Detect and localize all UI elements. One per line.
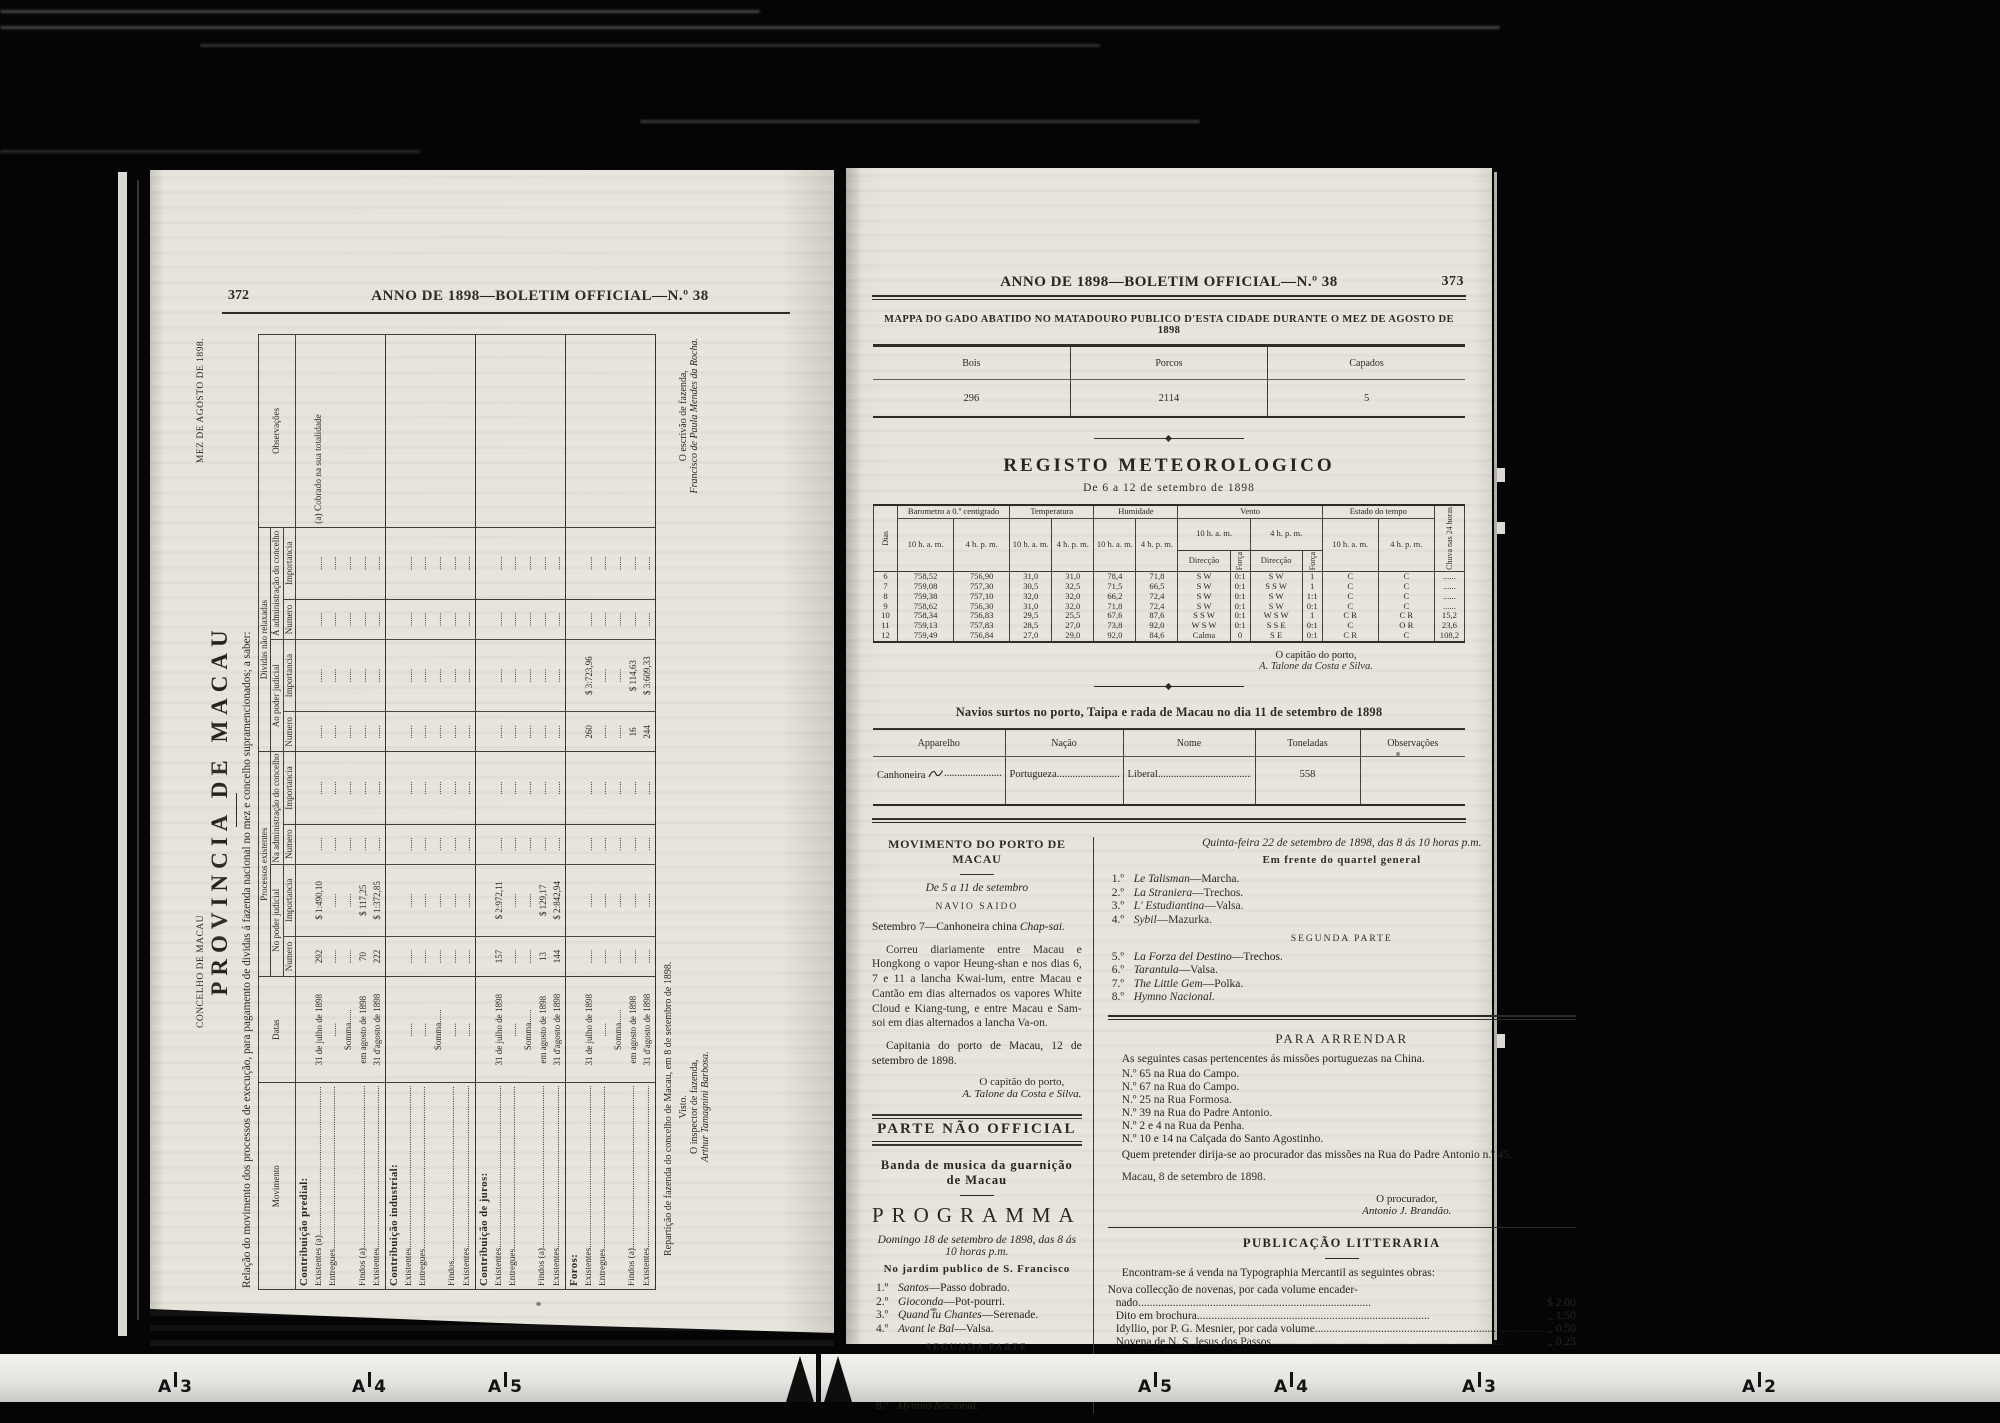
datas-cell: ...... [597, 977, 612, 1083]
value-cell: ...... [597, 752, 612, 824]
rotated-table-wrapper: CONCELHO DE MACAU MEZ DE AGOSTO DE 1898.… [196, 330, 812, 1290]
running-head: ANNO DE 1898—BOLETIM OFFICIAL—N.º 38 [290, 288, 790, 305]
value-cell: ...... [342, 752, 357, 824]
item-title: Gioconda [898, 1296, 943, 1308]
provincia-title: PROVINCIA DE MACAU [207, 330, 233, 1290]
house-item: N.º 25 na Rua Formosa. [1108, 1094, 1576, 1106]
table-row: Existentes31 d'agosto de 1898222$ 1:372,… [371, 335, 386, 1290]
col-header: Temperatura [1010, 505, 1094, 518]
programma2-part1-list: 1.ºLe Talisman—Marcha.2.ºLa Straniera—Tr… [1108, 873, 1576, 926]
item-number: 7.º [1112, 978, 1134, 990]
value-cell: ...... [356, 712, 371, 752]
col-header: Importancia [283, 527, 295, 599]
inspector-signature: Visto. O inspector de fazenda, Arthur Ta… [678, 1052, 711, 1162]
value-cell: ...... [371, 824, 386, 864]
value-cell: ...... [402, 599, 417, 639]
value-cell: ...... [626, 599, 641, 639]
value-cell: ...... [507, 864, 522, 936]
value-cell: ...... [582, 599, 597, 639]
obs-cell [417, 335, 432, 528]
programme-item: 3.ºL' Estudiantina—Valsa. [1108, 900, 1576, 912]
movimento-label: Findos (a) [626, 1083, 641, 1290]
film-streak [0, 150, 420, 153]
movimento-label: Findos [446, 1083, 461, 1290]
section-row: Foros: [566, 335, 583, 1290]
arrendar-title: PARA ARRENDAR [1108, 1031, 1576, 1047]
label-leader: Findos [448, 1086, 458, 1286]
col-header: Movimento [259, 1083, 296, 1290]
table-topline: CONCELHO DE MACAU MEZ DE AGOSTO DE 1898. [196, 330, 206, 1290]
col-header: Importancia [283, 752, 295, 824]
film-edge-line [137, 180, 139, 1320]
section-row: Contribuição de juros: [476, 335, 493, 1290]
col-header: 10 h. a. m. [1010, 518, 1052, 571]
ruler-label: A4 [352, 1377, 386, 1397]
value-cell: ...... [641, 864, 656, 936]
col-header: Estado do tempo [1322, 505, 1434, 518]
value-cell: ...... [582, 527, 597, 599]
house-item: N.º 65 na Rua do Campo. [1108, 1068, 1576, 1080]
leader-dots [463, 1086, 473, 1247]
value-cell: ...... [402, 864, 417, 936]
obs-cell [342, 335, 357, 528]
label-text: Existentes [463, 1248, 473, 1286]
meteo-data-row: 12759,49756,8427,029,092,084,6Calma0S E0… [874, 631, 1465, 642]
ruler-number: 4 [374, 1377, 386, 1397]
label-text: Existentes [373, 1248, 383, 1286]
datas-cell: Somma...... [431, 977, 446, 1083]
left-table-body: Contribuição predial:Existentes (a)31 de… [296, 335, 656, 1290]
meteo-value: Calma [1178, 631, 1230, 642]
value-cell: ...... [626, 864, 641, 936]
col-header: 4 h. p. m. [1052, 518, 1094, 571]
value-cell: 157 [492, 936, 507, 976]
empty-cell [566, 640, 583, 712]
value-cell: ...... [417, 640, 432, 712]
movimento-label: Existentes [461, 1083, 476, 1290]
programme-item: 1.ºSantos—Passo dobrado. [872, 1282, 1082, 1294]
meteo-data-row: 9758,62756,3031,032,071,872,4S W0:1S W0:… [874, 602, 1465, 612]
value-cell: ...... [371, 527, 386, 599]
dash-rule [1325, 1258, 1359, 1259]
value-cell: ...... [461, 527, 476, 599]
value-cell: 70 [356, 936, 371, 976]
houses-list: N.º 65 na Rua do Campo.N.º 67 na Rua do … [1108, 1068, 1576, 1145]
rotated-table: CONCELHO DE MACAU MEZ DE AGOSTO DE 1898.… [196, 330, 812, 1290]
price-line: nado$ 2.00 [1108, 1297, 1576, 1309]
value-cell: ...... [626, 752, 641, 824]
value-cell: ...... [461, 640, 476, 712]
meteo-data-row: 10758,34756,8329,525,567,687,6S S W0:1W … [874, 611, 1465, 621]
gado-col-header: Bois [873, 346, 1070, 380]
value-cell: ...... [521, 824, 536, 864]
film-ruler: A3A4A5A5A4A3A2 [0, 1354, 2000, 1402]
ruler-tick [174, 1372, 177, 1387]
value-cell: $ 3:609,33 [641, 640, 656, 712]
leader-dots [495, 1086, 505, 1247]
nacao-cell: Portugueza [1005, 757, 1123, 792]
section-rule [1108, 1227, 1576, 1228]
datas-cell: em agosto de 1898 [356, 977, 371, 1083]
ruler-gap [816, 1354, 821, 1402]
item-title: La Forza del Destino [1134, 951, 1232, 963]
label-leader: Entregues [419, 1086, 429, 1286]
ruler-number: 4 [1296, 1377, 1308, 1397]
value-cell: ...... [626, 936, 641, 976]
column-left: MOVIMENTO DO PORTO DE MACAU De 5 a 11 de… [872, 837, 1093, 1414]
film-sprocket-mark [1497, 468, 1505, 482]
ruler-number: 2 [1764, 1377, 1776, 1397]
section-rule [1108, 1015, 1576, 1022]
value-cell: $ 1:490,10 [312, 864, 327, 936]
head-rule [222, 312, 790, 314]
label-text: Existentes [643, 1248, 653, 1286]
datas-cell: 31 de julho de 1898 [492, 977, 507, 1083]
ruler-number: 3 [1484, 1377, 1496, 1397]
value-cell: ...... [521, 712, 536, 752]
left-table-head: MovimentoDatasProcessos existentesDivida… [259, 335, 296, 1290]
value-cell: ...... [611, 936, 626, 976]
value-cell: ...... [492, 640, 507, 712]
value-cell: ...... [312, 824, 327, 864]
obs-cell [402, 335, 417, 528]
gado-value: 2114 [1070, 380, 1267, 418]
item-title: Hymno Nacional. [898, 1400, 979, 1412]
label-text: Entregues [329, 1249, 339, 1286]
empty-cell [296, 527, 313, 599]
value-cell: 260 [582, 712, 597, 752]
value-cell: ...... [611, 864, 626, 936]
label-leader: Findos (a) [359, 1086, 369, 1286]
value-cell: ...... [461, 824, 476, 864]
col-header-vertical: Força [1235, 552, 1244, 570]
value-cell: ...... [431, 936, 446, 976]
label-leader: Entregues [329, 1086, 339, 1286]
empty-cell [386, 752, 403, 824]
price-value: „ 0.25 [1548, 1336, 1576, 1348]
dash-rule [960, 874, 994, 875]
leader-dots [1138, 1297, 1547, 1309]
programme-item: 2.ºLa Straniera—Trechos. [1108, 887, 1576, 899]
value-cell: ...... [446, 640, 461, 712]
empty-cell [566, 335, 583, 528]
item-genre: —Valsa. [1179, 964, 1218, 976]
col-header: Nome [1123, 729, 1255, 757]
table-row: Somma...................................… [611, 335, 626, 1290]
ruler-letter: A [1138, 1377, 1151, 1397]
programme-item: 2.ºGioconda—Pot-pourri. [872, 1296, 1082, 1308]
meteo-value: 0 [1230, 631, 1250, 642]
value-cell: ...... [461, 752, 476, 824]
value-cell: ...... [417, 527, 432, 599]
table-row: Somma...................................… [521, 335, 536, 1290]
film-sprocket-mark [1497, 522, 1505, 534]
value-cell: ...... [521, 640, 536, 712]
value-cell: ...... [342, 864, 357, 936]
label-leader: Existentes [463, 1086, 473, 1286]
toneladas-cell: 558 [1255, 757, 1360, 792]
value-cell: $ 114,63 [626, 640, 641, 712]
datas-cell: ...... [402, 977, 417, 1083]
value-cell: ...... [551, 599, 566, 639]
meteo-head-row: DiasBarometro a 0.º centigradoTemperatur… [874, 505, 1465, 518]
procurador-signature: O procurador, Antonio J. Brandão. [1238, 1193, 1576, 1217]
value-cell: ...... [597, 936, 612, 976]
programme-item: 8.ºHymno Nacional. [872, 1400, 1082, 1412]
table-row: Existentes31 de julho de 1898157$ 2:972,… [492, 335, 507, 1290]
col-header-vertical: Chuva nas 24 horas [1445, 507, 1454, 570]
item-number: 3.º [1112, 900, 1134, 912]
value-cell: ...... [551, 752, 566, 824]
price-line: Novena de N. S. Jesus dos Passos„ 0.25 [1108, 1336, 1576, 1348]
col-header: Datas [259, 977, 296, 1083]
handwritten-mark [928, 768, 944, 779]
value-cell: ...... [582, 824, 597, 864]
datas-cell: em agosto de 1898 [536, 977, 551, 1083]
col-header: Nação [1005, 729, 1123, 757]
page-number: 373 [1442, 274, 1465, 290]
ruler-number: 3 [180, 1377, 192, 1397]
value-cell: ...... [597, 527, 612, 599]
value-cell: $ 3:723,96 [582, 640, 597, 712]
movimento-paragraph: Correu diariamente entre Macau e Hongkon… [872, 943, 1082, 1031]
gado-title: MAPPA DO GADO ABATIDO NO MATADOURO PUBLI… [872, 314, 1466, 336]
meteo-value: 759,49 [898, 631, 954, 642]
value-cell: ...... [431, 824, 446, 864]
table-row: Findos..................................… [446, 335, 461, 1290]
value-cell: ...... [551, 712, 566, 752]
film-streak [0, 26, 1500, 29]
movimento-label: Entregues [507, 1083, 522, 1290]
programma2-venue: Em frente do quartel general [1108, 854, 1576, 866]
programma-venue: No jardim publico de S. Francisco [872, 1263, 1082, 1275]
label-text: Existentes [553, 1248, 563, 1286]
col-header: Humidade [1094, 505, 1178, 518]
dia-cell: 12 [874, 631, 898, 642]
meteo-value: 108,2 [1434, 631, 1464, 642]
value-cell: ...... [641, 752, 656, 824]
value-cell: ...... [446, 824, 461, 864]
gado-value: 296 [873, 380, 1070, 418]
concelho-label: CONCELHO DE MACAU [196, 915, 206, 1028]
item-title: Avant le Bal [898, 1323, 954, 1335]
parte-nao-official-banner: PARTE NÃO OFFICIAL [872, 1114, 1082, 1146]
section-title: Contribuição de juros: [476, 1083, 493, 1290]
item-title: Quand tu Chantes [898, 1309, 982, 1321]
value-cell: ...... [402, 712, 417, 752]
leader-dots [1315, 1323, 1548, 1335]
leader-dots [643, 1086, 653, 1247]
value-cell: ...... [611, 824, 626, 864]
value-cell: ...... [356, 824, 371, 864]
movimento-label: Entregues [597, 1083, 612, 1290]
col-header: Dias [874, 505, 898, 571]
title-rule [236, 793, 237, 827]
table-row: Entregues...............................… [597, 335, 612, 1290]
item-title: The Little Gem [1134, 978, 1203, 990]
table-row: Existentes31 d'agosto de 1898...........… [641, 335, 656, 1290]
movimento-label: Existentes [582, 1083, 597, 1290]
movimento-label [611, 1083, 626, 1290]
programme-item: 1.ºLe Talisman—Marcha. [1108, 873, 1576, 885]
empty-cell [386, 977, 403, 1083]
table-row: Existentes..............................… [402, 335, 417, 1290]
leader-dots [359, 1086, 369, 1248]
value-cell: ...... [536, 824, 551, 864]
item-number: 2.º [876, 1296, 898, 1308]
value-cell: ...... [536, 712, 551, 752]
meteo-value: 84,6 [1136, 631, 1178, 642]
arrendar-outro: Quem pretender dirija-se ao procurador d… [1108, 1148, 1576, 1163]
value-cell: ...... [417, 936, 432, 976]
empty-cell [386, 335, 403, 528]
value-cell: ...... [507, 752, 522, 824]
movimento-label [342, 1083, 357, 1290]
col-header: Numero [283, 599, 295, 639]
ornament-divider [1094, 686, 1244, 687]
value-cell: ...... [521, 752, 536, 824]
movimento-label: Entregues [327, 1083, 342, 1290]
page-number: 372 [228, 288, 249, 304]
datas-cell: Somma...... [342, 977, 357, 1083]
col-header: Numero [283, 824, 295, 864]
value-cell: ...... [431, 864, 446, 936]
value-cell: ...... [446, 527, 461, 599]
ruler-letter: A [158, 1377, 171, 1397]
film-speck [536, 1302, 541, 1306]
item-genre: —Polka. [1203, 978, 1244, 990]
col-header: Toneladas [1255, 729, 1360, 757]
ruler-tick [504, 1372, 507, 1387]
value-cell: ...... [312, 599, 327, 639]
empty-cell [476, 527, 493, 599]
movimento-label: Findos (a) [356, 1083, 371, 1290]
label-text: Findos (a) [359, 1248, 369, 1286]
obs-cell: (a) Cobrado na sua totalidade [312, 335, 327, 528]
empty-cell [386, 640, 403, 712]
ruler-triangle [824, 1356, 852, 1402]
col-header: 4 h. p. m. [1136, 518, 1178, 571]
value-cell: $ 2:972,11 [492, 864, 507, 936]
meteo-data-row: 7759,08757,3030,532,571,566,5S W0:1S S W… [874, 582, 1465, 592]
house-item: N.º 67 na Rua do Campo. [1108, 1081, 1576, 1093]
price-label: Nova collecção de novenas, por cada volu… [1108, 1284, 1358, 1296]
value-cell: ...... [492, 712, 507, 752]
col-header: Direcção [1178, 550, 1230, 571]
empty-cell [476, 977, 493, 1083]
empty-cell [296, 824, 313, 864]
value-cell: ...... [312, 527, 327, 599]
col-header: Numero [283, 712, 295, 752]
datas-cell: 31 d'agosto de 1898 [371, 977, 386, 1083]
col-header: Observações [1360, 729, 1465, 757]
ruler-tick [1478, 1372, 1481, 1387]
col-header: No poder judicial [271, 864, 283, 976]
programme-item: 5.ºLa Forza del Destino—Trechos. [1108, 951, 1576, 963]
leader-dots [599, 1086, 609, 1248]
empty-cell [566, 936, 583, 976]
running-head: ANNO DE 1898—BOLETIM OFFICIAL—N.º 38 373 [872, 274, 1466, 291]
obs-cell [446, 335, 461, 528]
datas-cell: Somma...... [611, 977, 626, 1083]
value-cell: ...... [417, 824, 432, 864]
value-cell: 244 [641, 712, 656, 752]
leader-dots [628, 1086, 638, 1248]
ruler-letter: A [1274, 1377, 1287, 1397]
value-cell: ...... [551, 640, 566, 712]
value-cell: ...... [611, 640, 626, 712]
col-header: 10 h. a. m. [898, 518, 954, 571]
house-item: N.º 10 e 14 na Calçada do Santo Agostinh… [1108, 1133, 1576, 1145]
ruler-tick [1290, 1372, 1293, 1387]
processos-table: MovimentoDatasProcessos existentesDivida… [258, 334, 656, 1290]
obs-cell [521, 335, 536, 528]
gado-col-header: Porcos [1070, 346, 1267, 380]
right-page: ANNO DE 1898—BOLETIM OFFICIAL—N.º 38 373… [846, 168, 1492, 1344]
col-header: Apparelho [873, 729, 1005, 757]
gado-value: 5 [1268, 380, 1465, 418]
label-leader: Findos (a) [628, 1086, 638, 1286]
col-header-vertical: Dias [881, 531, 890, 546]
value-cell: ...... [507, 527, 522, 599]
obs-cell [507, 335, 522, 528]
house-item: N.º 39 na Rua do Padre Antonio. [1108, 1107, 1576, 1119]
item-number: 4.º [876, 1323, 898, 1335]
leader-dots [448, 1086, 458, 1260]
item-number: 8.º [1112, 991, 1134, 1003]
obs-cell [551, 335, 566, 528]
ruler-label: A5 [1138, 1377, 1172, 1397]
price-line: Nova collecção de novenas, por cada volu… [1108, 1284, 1576, 1296]
leader-dots [373, 1086, 383, 1247]
value-cell: ...... [402, 640, 417, 712]
value-cell: ...... [536, 640, 551, 712]
movimento-label [431, 1083, 446, 1290]
label-text: Findos (a) [538, 1248, 548, 1286]
table-row: Entregues...............................… [417, 335, 432, 1290]
label-leader: Existentes [405, 1086, 415, 1286]
value-cell: ...... [327, 864, 342, 936]
capitania-line: Capitania do porto de Macau, 12 de setem… [872, 1039, 1082, 1068]
film-streak [0, 10, 760, 13]
leader-dots [553, 1086, 563, 1247]
empty-cell [386, 936, 403, 976]
value-cell: ...... [641, 936, 656, 976]
col-header: 10 h. a. m. [1178, 518, 1250, 550]
value-cell: ...... [342, 824, 357, 864]
section-row: Contribuição industrial: [386, 335, 403, 1290]
empty-cell [296, 752, 313, 824]
label-leader: Existentes [643, 1086, 653, 1286]
datas-cell: ...... [446, 977, 461, 1083]
label-text: Existentes [405, 1248, 415, 1286]
empty-cell [566, 527, 583, 599]
table-row: Findos (a)em agosto de 189870$ 117,25...… [356, 335, 371, 1290]
empty-cell [476, 712, 493, 752]
empty-cell [566, 977, 583, 1083]
house-item: N.º 2 e 4 na Rua da Penha. [1108, 1120, 1576, 1132]
meteo-data-row: 6758,52756,9031,031,078,471,8S W0:1S W1C… [874, 571, 1465, 581]
empty-cell [296, 599, 313, 639]
empty-cell [566, 599, 583, 639]
datas-cell: 31 de julho de 1898 [312, 977, 327, 1083]
programme-item: 8.ºHymno Nacional. [1108, 991, 1576, 1003]
value-cell: ...... [417, 864, 432, 936]
leader-dots [509, 1086, 519, 1248]
label-leader: Findos (a) [538, 1086, 548, 1286]
item-title: La Straniera [1134, 887, 1192, 899]
label-leader: Existentes (a) [315, 1086, 325, 1286]
